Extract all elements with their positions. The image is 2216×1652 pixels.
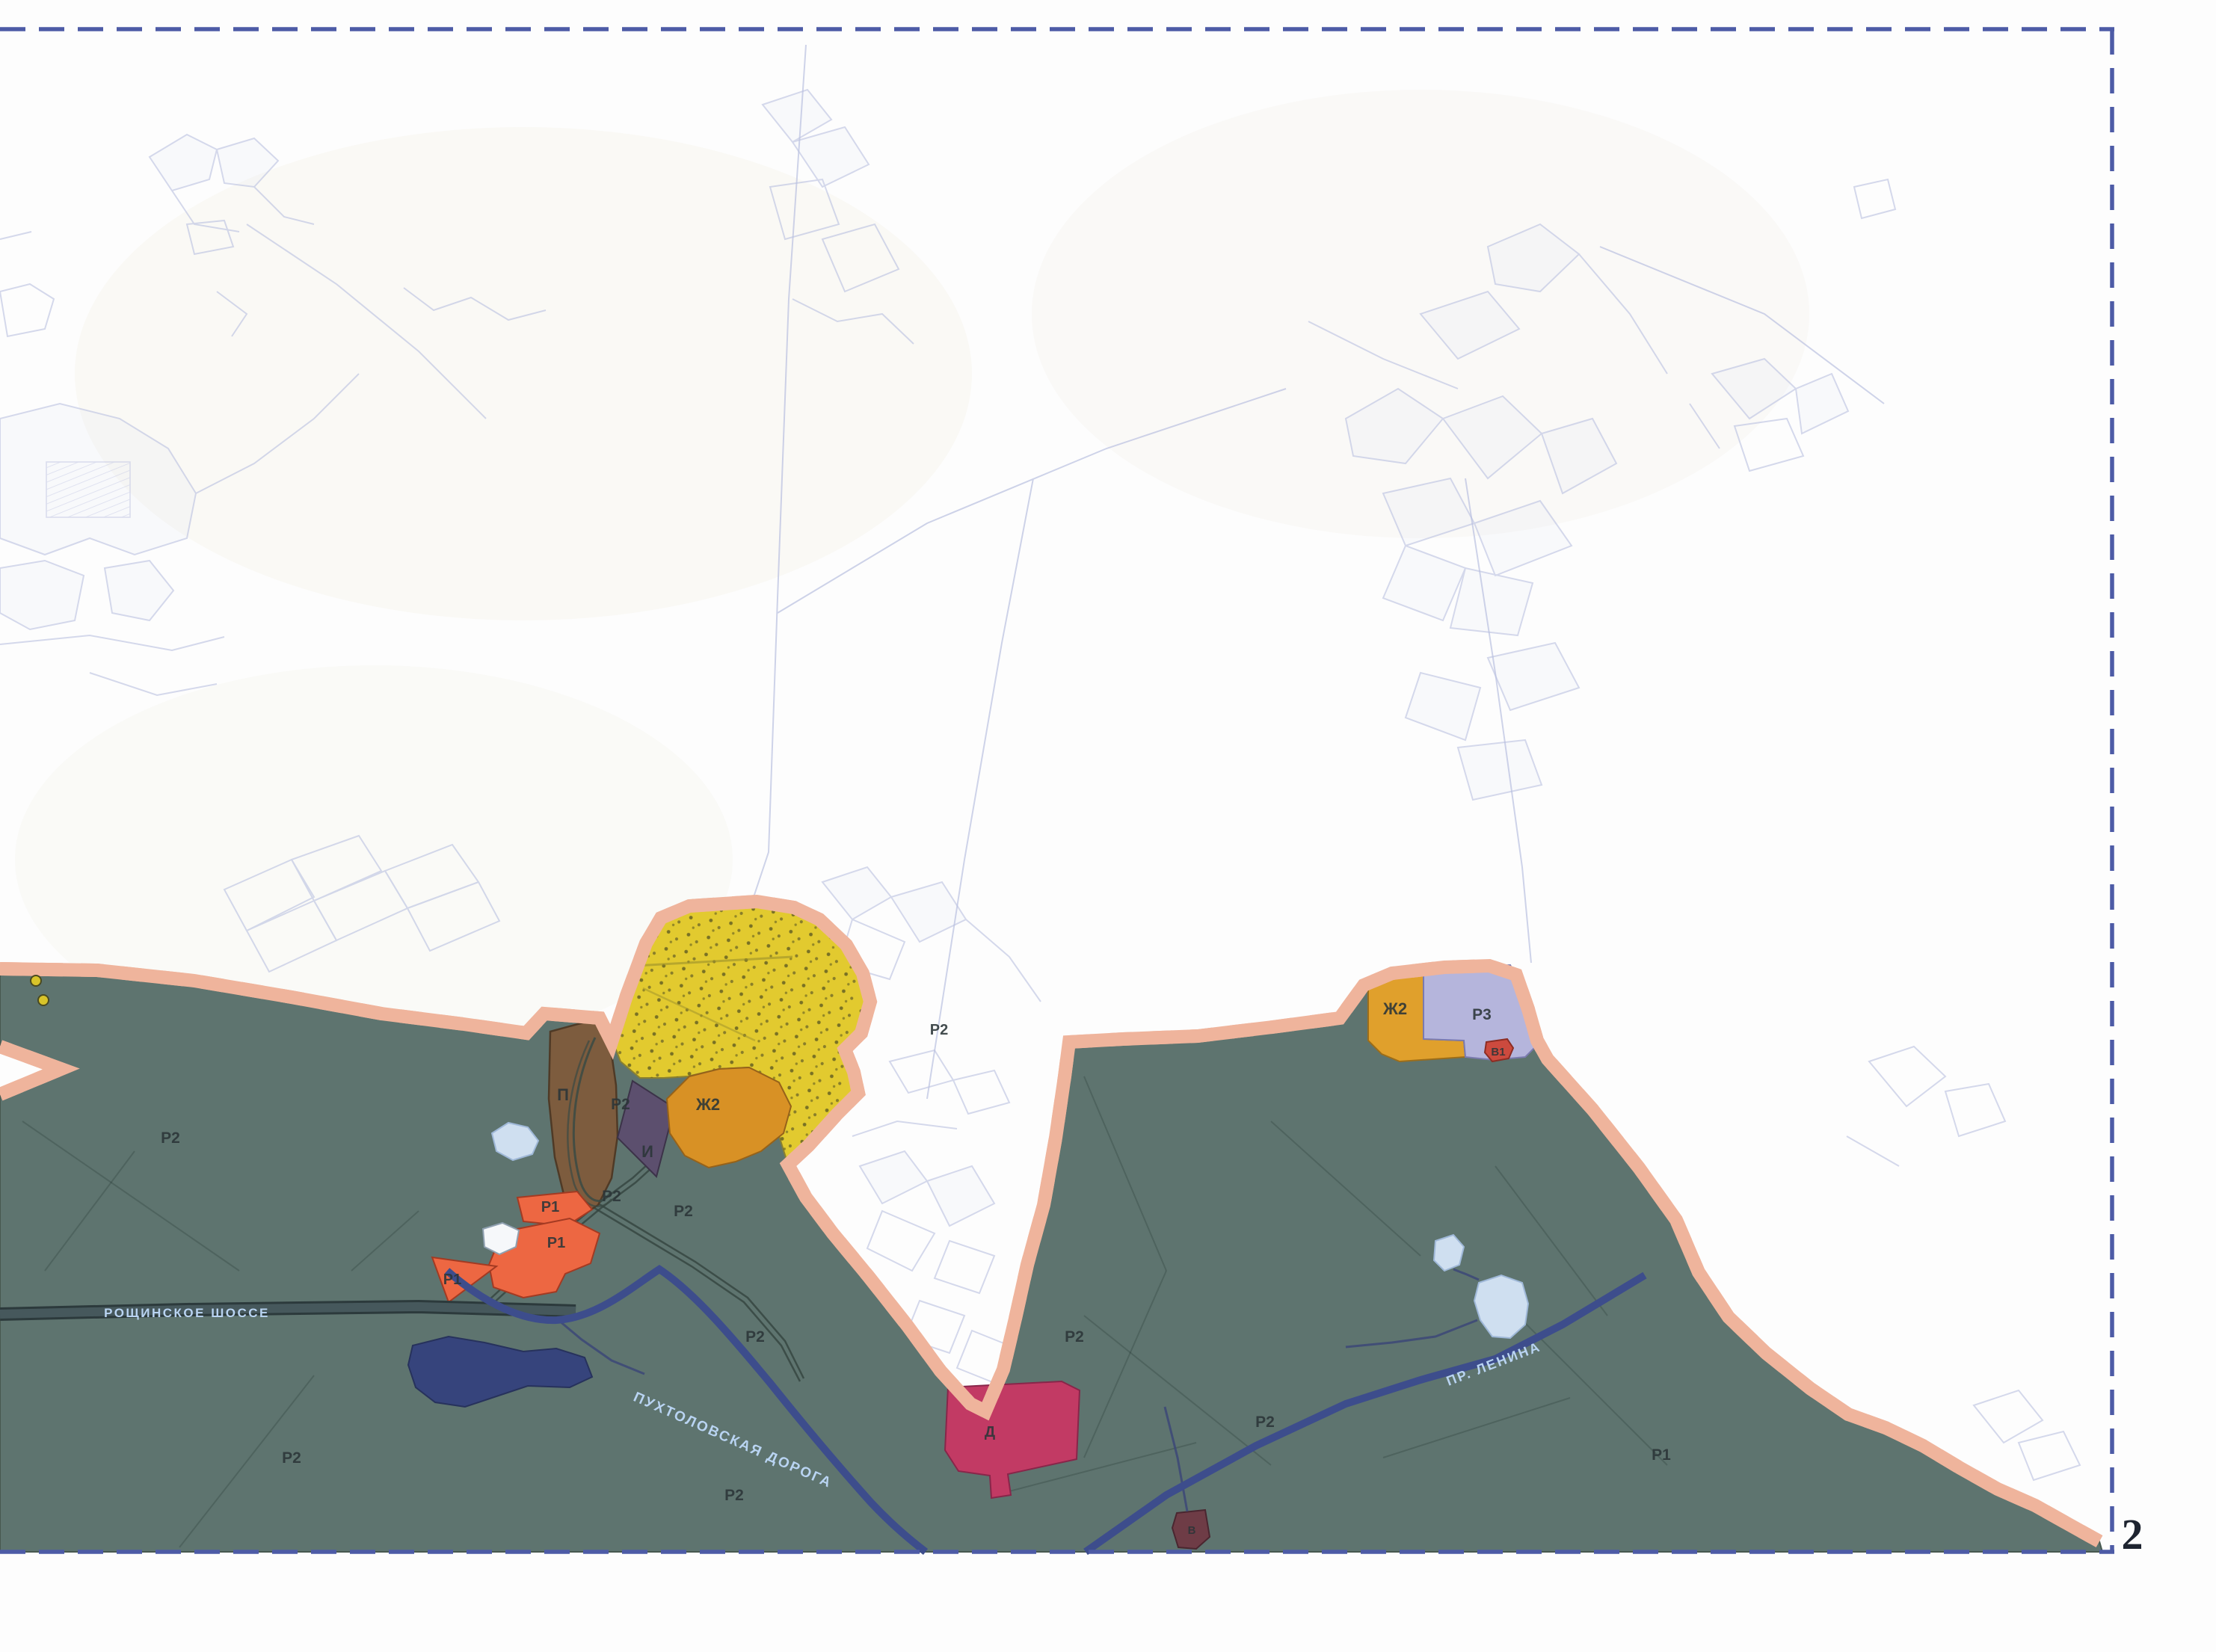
zone-label-r2: Р2: [161, 1129, 180, 1147]
zone-label-r1: Р1: [541, 1199, 559, 1215]
zone-label-r2: Р2: [724, 1487, 744, 1504]
zone-label-zh2-east: Ж2: [1382, 999, 1407, 1018]
sheet-number: 2: [2122, 1510, 2143, 1559]
boundary-marker-icon: [38, 995, 49, 1005]
zone-label-p: П: [557, 1085, 569, 1104]
scan-tint: [75, 127, 972, 620]
zoning-map: П И Ж2 Р2 Р2 Р2 Р2 Р2 Р1 Р1 Р1 Р2 Р2 Д В…: [0, 0, 2216, 1652]
zone-label-d: Д: [985, 1424, 995, 1440]
road-label-roshchinskoye: РОЩИНСКОЕ ШОССЕ: [104, 1306, 270, 1320]
zone-label-zh2-west: Ж2: [695, 1095, 720, 1114]
zone-label-r2: Р2: [282, 1449, 301, 1467]
zone-label-r2: Р2: [674, 1203, 693, 1220]
zone-label-r1: Р1: [547, 1235, 565, 1251]
zone-label-r2: Р2: [930, 1022, 948, 1038]
zone-label-v1: В1: [1491, 1046, 1505, 1058]
zone-label-i: И: [641, 1142, 653, 1161]
zone-label-r2: Р2: [1255, 1414, 1275, 1431]
zone-label-r2: Р2: [745, 1328, 765, 1346]
zone-label-r2: Р2: [611, 1096, 630, 1113]
zone-label-r2: Р2: [602, 1188, 621, 1205]
zone-label-v: В: [1188, 1524, 1196, 1537]
zone-label-r1: Р1: [1652, 1446, 1671, 1464]
zone-label-r2: Р2: [1065, 1328, 1084, 1346]
zone-label-r1: Р1: [443, 1272, 461, 1288]
map-sheet: П И Ж2 Р2 Р2 Р2 Р2 Р2 Р1 Р1 Р1 Р2 Р2 Д В…: [0, 0, 2216, 1652]
zone-label-r3: Р3: [1472, 1006, 1492, 1023]
boundary-marker-icon: [31, 976, 41, 986]
